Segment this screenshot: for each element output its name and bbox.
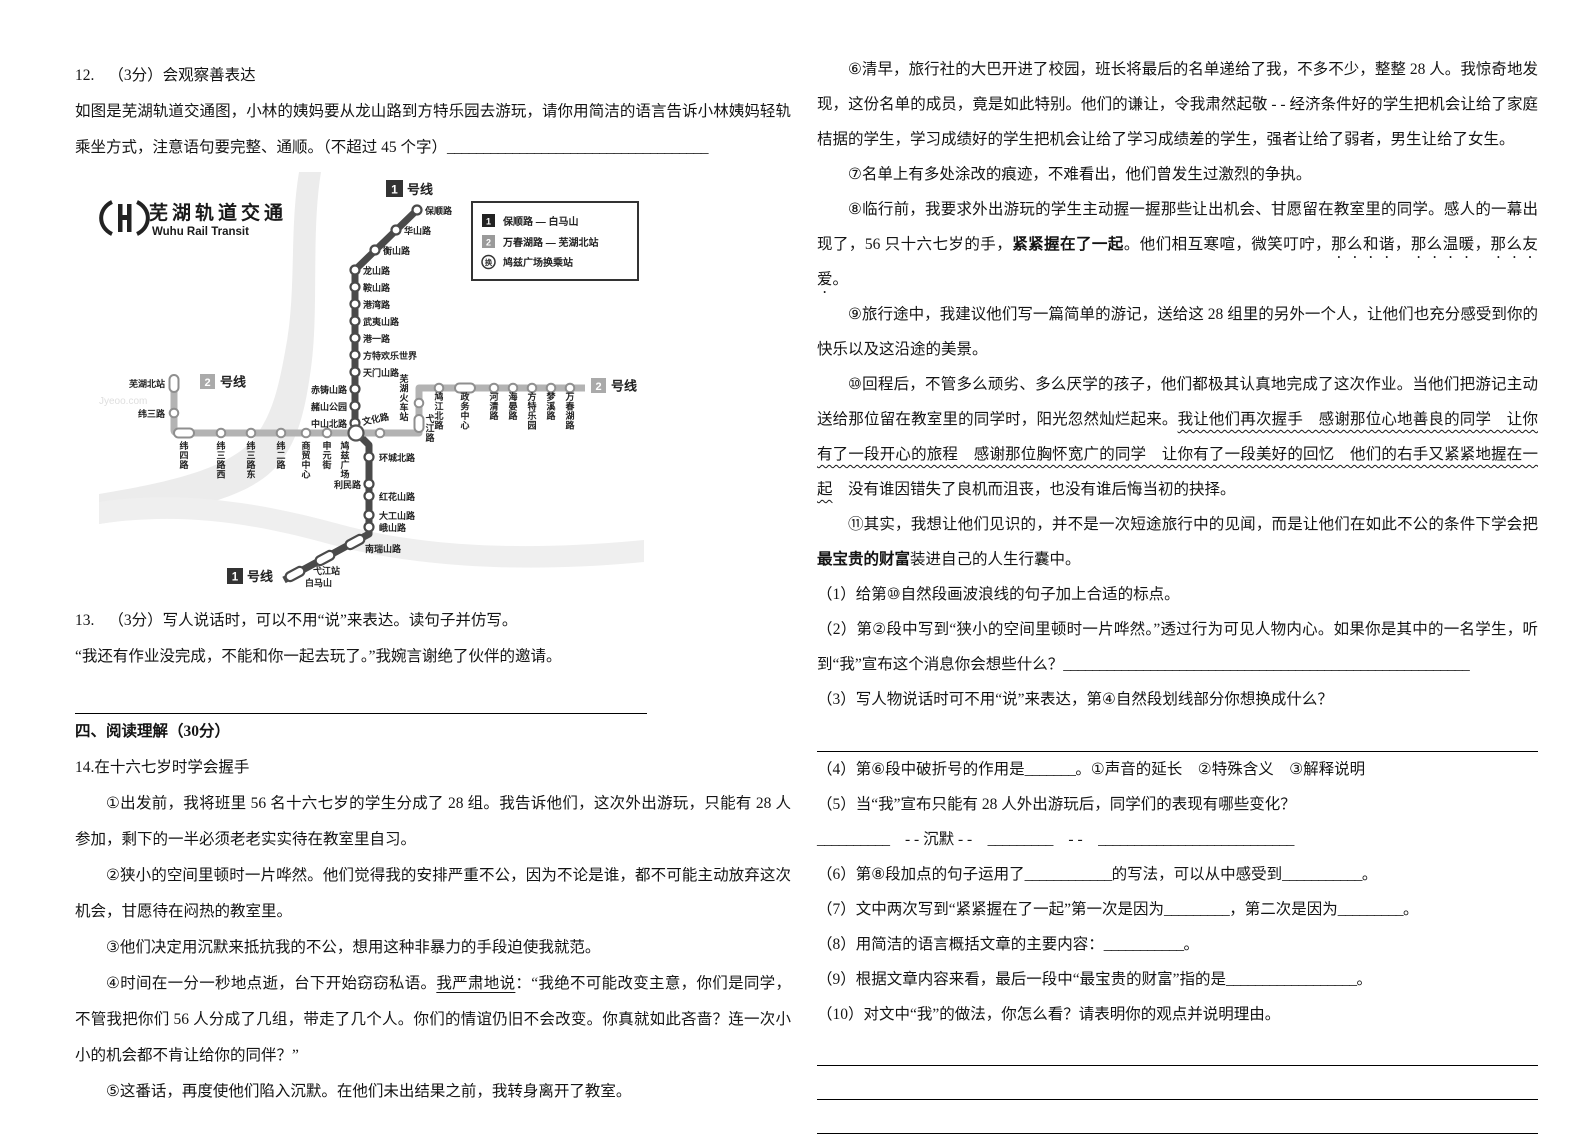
svg-text:申元街: 申元街	[321, 440, 331, 470]
svg-text:大工山路: 大工山路	[379, 510, 416, 521]
svg-text:纬三路: 纬三路	[138, 408, 166, 419]
question-12-title: 会观察善表达	[163, 67, 256, 84]
svg-text:白马山: 白马山	[305, 577, 332, 588]
question-14-sub-6: （6）第⑧段加点的句子运用了____________的写法，可以从中感受到___…	[817, 857, 1538, 892]
legend-transfer: 鸠兹广场换乘站	[503, 256, 573, 269]
svg-text:方特乐园: 方特乐园	[527, 391, 536, 431]
svg-text:河清路: 河清路	[489, 391, 499, 421]
transfer-station-marker	[349, 426, 364, 441]
svg-text:1: 1	[391, 183, 398, 197]
passage-paragraph-7: ⑦名单上有多处涂改的痕迹，不难看出，他们曾发生过激烈的争执。	[817, 157, 1538, 192]
passage-paragraph-5: ⑤这番话，再度使他们陷入沉默。在他们未出结果之前，我转身离开了教室。	[75, 1074, 791, 1110]
svg-text:1: 1	[232, 572, 239, 584]
passage-paragraph-6: ⑥清早，旅行社的大巴开进了校园，班长将最后的名单递给了我，不多不少，整整 28 …	[817, 52, 1538, 157]
svg-text:龙山路: 龙山路	[362, 265, 391, 276]
svg-text:2: 2	[204, 377, 210, 389]
question-13-text: 写人说话时，可以不用“说”来表达。读句子并仿写。	[163, 612, 518, 629]
svg-text:衡山路: 衡山路	[383, 245, 411, 256]
question-14-sub-3: （3）写人物说话时可不用“说”来表达，第④自然段划线部分你想换成什么？	[817, 682, 1538, 717]
line2-path	[174, 382, 585, 433]
svg-text:中山北路: 中山北路	[311, 418, 348, 429]
svg-text:海晏路: 海晏路	[508, 391, 518, 421]
question-13-score: （3分）	[108, 612, 162, 629]
question-14-sub-2: （2）第②段中写到“狭小的空间里顿时一片哗然。”透过行为可见人物内心。如果你是其…	[817, 612, 1538, 682]
answer-line	[75, 675, 647, 714]
passage-paragraph-3: ③他们决定用沉默来抵抗我的不公，想用这种非暴力的手段迫使我就范。	[75, 930, 791, 966]
svg-text:2: 2	[486, 238, 491, 248]
question-14-sub-8: （8）用简洁的语言概括文章的主要内容：___________。	[817, 927, 1538, 962]
svg-text:号线: 号线	[407, 182, 433, 197]
svg-text:华山路: 华山路	[404, 225, 432, 236]
question-13-header: 13.（3分）写人说话时，可以不用“说”来表达。读句子并仿写。	[75, 603, 791, 639]
svg-text:赤铸山路: 赤铸山路	[311, 384, 348, 395]
question-14-sub-5: （5）当“我”宣布只能有 28 人外出游玩后，同学们的表现有哪些变化？	[817, 787, 1538, 822]
svg-text:南瑞山路: 南瑞山路	[365, 543, 402, 554]
svg-text:纬二路: 纬二路	[276, 440, 286, 470]
map-legend: 1 保顺路 — 白马山 2 万春湖路 — 芜湖北站 换 鸠兹广场换乘站	[472, 202, 638, 280]
question-14-sub-10: （10）对文中“我”的做法，你怎么看？请表明你的观点并说明理由。	[817, 997, 1538, 1032]
line2-badge-right: 2 号线	[591, 378, 637, 394]
line1-badge-top: 1 号线	[386, 180, 433, 197]
svg-text:芜湖北站: 芜湖北站	[129, 378, 165, 389]
svg-text:红花山路: 红花山路	[379, 491, 416, 502]
question-12-header: 12.（3分）会观察善表达	[75, 58, 791, 94]
map-logo-subtitle: Wuhu Rail Transit	[152, 226, 249, 238]
svg-text:环城北路: 环城北路	[379, 452, 416, 463]
svg-text:换: 换	[485, 257, 493, 267]
question-14-sub-1: （1）给第⑩自然段画波浪线的句子加上合适的标点。	[817, 577, 1538, 612]
answer-line	[817, 1032, 1538, 1066]
svg-text:2: 2	[595, 381, 601, 393]
svg-text:万春湖路: 万春湖路	[564, 392, 575, 431]
map-logo-title: 芜湖轨道交通	[149, 201, 287, 224]
svg-text:政务中心: 政务中心	[460, 391, 470, 431]
answer-line	[817, 717, 1538, 752]
svg-text:天门山路: 天门山路	[363, 367, 400, 378]
wuhu-rail-transit-map: Jyeoo.com 芜湖轨道交通 Wuhu Rail Transit 1 号线	[99, 172, 644, 597]
svg-text:保顺路: 保顺路	[424, 205, 453, 216]
question-13-quote: “我还有作业没完成，不能和你一起去玩了。”我婉言谢绝了伙伴的邀请。	[75, 639, 791, 675]
answer-line	[817, 1066, 1538, 1100]
svg-text:赭山公园: 赭山公园	[311, 401, 347, 412]
answer-line	[817, 1100, 1538, 1134]
svg-text:纬四路: 纬四路	[179, 440, 189, 470]
svg-text:商贸中心: 商贸中心	[301, 440, 310, 480]
svg-text:号线: 号线	[220, 375, 246, 390]
passage-paragraph-1: ①出发前，我将班里 56 名十六七岁的学生分成了 28 组。我告诉他们，这次外出…	[75, 786, 791, 858]
svg-text:梦溪路: 梦溪路	[546, 391, 556, 421]
passage-paragraph-10: ⑩回程后，不管多么顽劣、多么厌学的孩子，他们都极其认真地完成了这次作业。当他们把…	[817, 367, 1538, 507]
legend-line2: 万春湖路 — 芜湖北站	[502, 236, 599, 249]
question-12-number: 12.	[75, 67, 94, 84]
question-13-number: 13.	[75, 612, 94, 629]
svg-text:武夷山路: 武夷山路	[363, 316, 400, 327]
passage-paragraph-8: ⑧临行前，我要求外出游玩的学生主动握一握那些让出机会、甘愿留在教室里的同学。感人…	[817, 192, 1538, 297]
svg-text:号线: 号线	[611, 379, 637, 394]
question-14-sub-7: （7）文中两次写到“紧紧握在了一起”第一次是因为_________，第二次是因为…	[817, 892, 1538, 927]
left-column: 12.（3分）会观察善表达 如图是芜湖轨道交通图，小林的姨妈要从龙山路到方特乐园…	[75, 0, 791, 1110]
metro-map-figure: Jyeoo.com 芜湖轨道交通 Wuhu Rail Transit 1 号线	[99, 172, 644, 597]
svg-text:纬三路东: 纬三路东	[246, 440, 256, 480]
svg-text:1: 1	[486, 217, 491, 227]
svg-text:芜湖火车站: 芜湖火车站	[399, 373, 409, 422]
right-column: ⑥清早，旅行社的大巴开进了校园，班长将最后的名单递给了我，不多不少，整整 28 …	[817, 0, 1538, 1134]
question-14-sub-4: （4）第⑥段中破折号的作用是_______。①声音的延长 ②特殊含义 ③解释说明	[817, 752, 1538, 787]
section-4-header: 四、阅读理解（30分）	[75, 714, 791, 750]
passage-paragraph-2: ②狭小的空间里顿时一片哗然。他们觉得我的安排严重不公，因为不论是谁，都不可能主动…	[75, 858, 791, 930]
line1-badge-bottom: 1 号线	[227, 568, 273, 584]
svg-text:纬三路西: 纬三路西	[216, 440, 226, 480]
svg-text:港一路: 港一路	[363, 333, 391, 344]
watermark: Jyeoo.com	[99, 396, 147, 407]
question-12-body: 如图是芜湖轨道交通图，小林的姨妈要从龙山路到方特乐园去游玩，请你用简洁的语言告诉…	[75, 94, 791, 166]
question-14-sub-9: （9）根据文章内容来看，最后一段中“最宝贵的财富”指的是____________…	[817, 962, 1538, 997]
svg-text:峨山路: 峨山路	[379, 522, 407, 533]
passage-title: 14.在十六七岁时学会握手	[75, 750, 791, 786]
svg-text:文化路: 文化路	[360, 410, 391, 427]
svg-text:弋江站: 弋江站	[313, 565, 340, 576]
question-12-score: （3分）	[108, 67, 162, 84]
legend-line1: 保顺路 — 白马山	[502, 215, 579, 228]
svg-text:号线: 号线	[247, 569, 273, 584]
svg-text:鸠兹广场: 鸠兹广场	[340, 440, 349, 480]
passage-paragraph-9: ⑨旅行途中，我建议他们写一篇简单的游记，送给这 28 组里的另外一个人，让他们也…	[817, 297, 1538, 367]
question-14-sub-5-blanks: __________ - - 沉默 - - _________ - - ____…	[817, 822, 1538, 857]
svg-text:利民路: 利民路	[333, 479, 362, 490]
svg-text:鞍山路: 鞍山路	[363, 282, 391, 293]
line2-badge-left: 2 号线	[200, 374, 246, 390]
svg-text:方特欢乐世界: 方特欢乐世界	[363, 350, 417, 361]
wuhu-rail-logo-icon	[101, 202, 148, 234]
svg-text:港湾路: 港湾路	[363, 299, 391, 310]
passage-paragraph-11: ⑪其实，我想让他们见识的，并不是一次短途旅行中的见闻，而是让他们在如此不公的条件…	[817, 507, 1538, 577]
passage-paragraph-4: ④时间在一分一秒地点逝，台下开始窃窃私语。我严肃地说：“我绝不可能改变主意，你们…	[75, 966, 791, 1074]
svg-text:鸠江北路: 鸠江北路	[434, 391, 444, 431]
